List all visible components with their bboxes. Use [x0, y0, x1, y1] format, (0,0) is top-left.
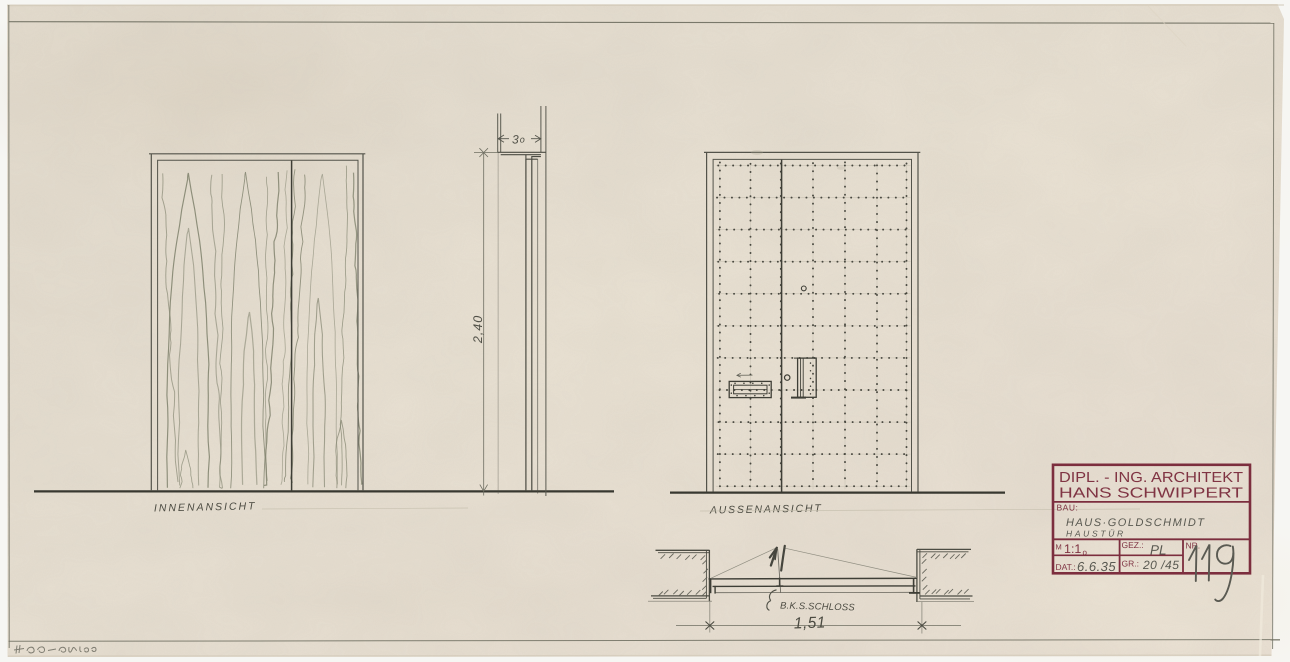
svg-text:6.6.35: 6.6.35 — [1077, 559, 1116, 574]
svg-text:HAUS·GOLDSCHMIDT: HAUS·GOLDSCHMIDT — [1066, 517, 1205, 529]
svg-text:M: M — [1056, 543, 1062, 552]
svg-text:GEZ.:: GEZ.: — [1122, 540, 1144, 550]
svg-text:2,40: 2,40 — [471, 315, 485, 344]
svg-text:3o: 3o — [512, 133, 526, 147]
svg-text:DIPL. - ING. ARCHITEKT: DIPL. - ING. ARCHITEKT — [1059, 470, 1243, 486]
svg-text:o: o — [1083, 548, 1088, 557]
svg-text:NR.: NR. — [1186, 541, 1201, 551]
svg-text:AUSSENANSICHT: AUSSENANSICHT — [709, 503, 824, 517]
svg-text:BAU:: BAU: — [1057, 503, 1079, 513]
svg-text:B.K.S.SCHLOSS: B.K.S.SCHLOSS — [780, 601, 856, 614]
svg-text:GR.:: GR.: — [1122, 559, 1139, 569]
svg-text:HANS SCHWIPPERT: HANS SCHWIPPERT — [1059, 486, 1243, 502]
svg-text:20 /45: 20 /45 — [1142, 558, 1179, 572]
svg-text:1:1: 1:1 — [1064, 542, 1081, 556]
svg-text:1,51: 1,51 — [794, 614, 827, 632]
svg-text:PL: PL — [1150, 543, 1167, 558]
svg-text:INNENANSICHT: INNENANSICHT — [154, 500, 258, 514]
svg-text:DAT.:: DAT.: — [1056, 562, 1076, 572]
